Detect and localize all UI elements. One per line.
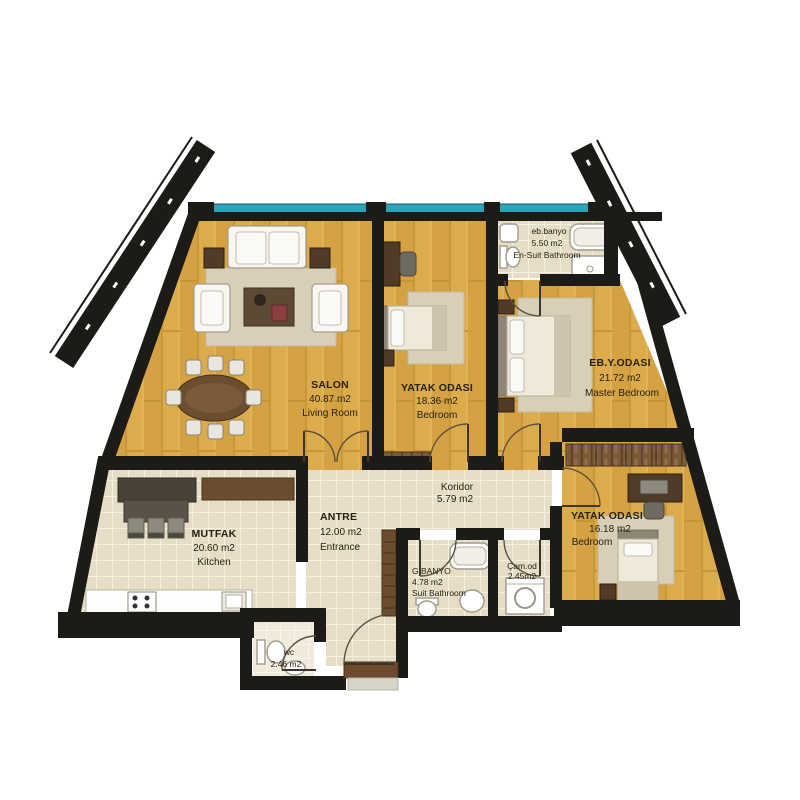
pillow (510, 320, 524, 354)
desk-chair (400, 252, 416, 276)
pillow (624, 543, 652, 556)
bathtub-basin (454, 547, 486, 565)
wc-name: wc (283, 647, 295, 657)
corridor-north-wall (362, 456, 432, 470)
desk-chair (644, 502, 664, 519)
kitchen-cabinet (118, 478, 196, 502)
bedroom2-area: 16.18 m2 (589, 524, 631, 535)
kitchen-cabinet (202, 478, 294, 500)
kitchen-area: 20.60 m2 (193, 543, 235, 554)
shoe-cabinet (382, 530, 396, 616)
bedroom1-master-wall (486, 212, 498, 464)
master-south-wall (562, 428, 694, 442)
bath-south-wall (396, 616, 562, 632)
corridor-name: Koridor (441, 482, 474, 493)
kitchen-sink-basin (226, 595, 242, 608)
label-entrance: ANTRE 12.00 m2 Entrance (320, 511, 362, 553)
sink (500, 224, 518, 242)
wc-north-wall (240, 608, 326, 622)
bath-divider-wall (488, 540, 498, 620)
wc-south-wall (240, 676, 346, 690)
entrance-area: 12.00 m2 (320, 527, 362, 538)
bath-west-wall (396, 528, 408, 678)
armchair-cushion (201, 291, 223, 325)
ensuite-name: eb.banyo (532, 226, 567, 236)
coffee-table-decor (272, 305, 287, 321)
sofa-cushion (269, 232, 299, 264)
toilet-tank (257, 640, 265, 664)
kitchen-name: MUTFAK (192, 528, 237, 540)
armchair-cushion (319, 291, 341, 325)
sofa-cushion (236, 232, 266, 264)
bath-north-wall (456, 528, 504, 540)
bath-north-wall (540, 528, 562, 540)
dining-table-top (185, 383, 243, 413)
master-name: EB.Y.ODASI (589, 357, 651, 369)
desk-monitor (640, 480, 668, 494)
corridor-area: 5.79 m2 (437, 494, 474, 505)
ensuite-bottom-wall (498, 274, 508, 286)
blanket (432, 306, 446, 350)
window-band (202, 204, 594, 213)
blanket (618, 581, 658, 600)
entrance-step (348, 678, 398, 690)
salon-alt: Living Room (302, 408, 358, 419)
corridor-north-wall (468, 456, 504, 470)
bottom-wall-left (58, 612, 254, 638)
entrance-name: ANTRE (320, 511, 357, 523)
bedroom2-alt: Bedroom (572, 537, 613, 548)
bathroom-alt: Suit Bathroom (412, 588, 466, 598)
ensuite-area: 5.50 m2 (532, 238, 563, 248)
master-alt: Master Bedroom (585, 388, 659, 399)
nightstand (498, 398, 514, 412)
vestibule-floor (326, 622, 396, 666)
salon-area: 40.87 m2 (309, 394, 351, 405)
laundry-name: Çam.od (507, 561, 537, 571)
stove (128, 592, 156, 612)
floor-plan-canvas: SALON 40.87 m2 Living Room YATAK ODASI 1… (0, 0, 800, 800)
side-table (310, 248, 330, 268)
wc-east-wall (314, 608, 326, 642)
bedroom1-alt: Bedroom (417, 410, 458, 421)
label-corridor: Koridor 5.79 m2 (437, 482, 474, 505)
bar-stools (128, 518, 184, 538)
bedroom2-west-wall (550, 442, 562, 470)
bathroom-name: G.BANYO (412, 566, 451, 576)
bathroom-area: 4.78 m2 (412, 577, 443, 587)
wc-area: 2.46 m2 (271, 659, 302, 669)
label-kitchen: MUTFAK 20.60 m2 Kitchen (192, 528, 237, 568)
ensuite-alt: En-Suit Bathroom (513, 250, 580, 260)
nightstand (600, 584, 616, 600)
side-table (204, 248, 224, 268)
floor-plan: SALON 40.87 m2 Living Room YATAK ODASI 1… (0, 0, 800, 800)
bedroom2-name: YATAK ODASI (571, 510, 643, 522)
kitchen-east-wall (296, 456, 308, 562)
salon-bedroom1-wall (372, 212, 384, 464)
laundry-area: 2.45m2 (508, 571, 537, 581)
salon-south-wall (98, 456, 306, 470)
entrance-alt: Entrance (320, 542, 360, 553)
bottom-wall-right (554, 600, 740, 626)
window-strip (202, 204, 594, 213)
kitchen-alt: Kitchen (197, 557, 230, 568)
label-laundry: Çam.od 2.45m2 (507, 561, 537, 581)
master-area: 21.72 m2 (599, 373, 641, 384)
pillow (510, 358, 524, 392)
coffee-table-decor (254, 294, 266, 306)
blanket (554, 316, 570, 396)
bedroom1-area: 18.36 m2 (416, 396, 458, 407)
toilet (418, 601, 436, 617)
bedroom1-name: YATAK ODASI (401, 382, 473, 394)
pillow (391, 310, 404, 346)
bedroom2-west-wall (550, 506, 562, 608)
salon-name: SALON (311, 379, 349, 391)
bed-headboard (498, 316, 507, 396)
